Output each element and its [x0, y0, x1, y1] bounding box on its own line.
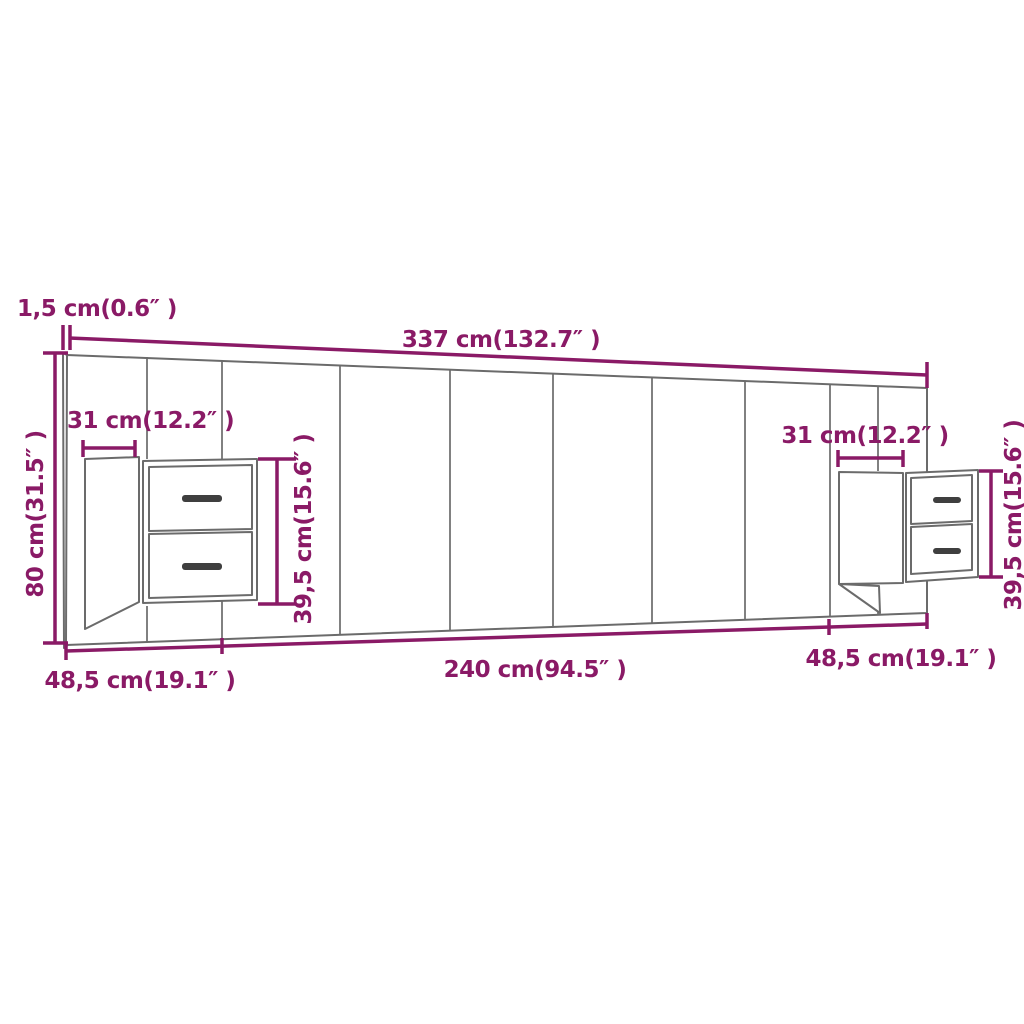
right-section-width-label: 48,5 cm(19.1″ )	[806, 646, 997, 672]
right-cabinet-width-label: 31 cm(12.2″ )	[781, 423, 948, 449]
left-cabinet-side-panel	[85, 457, 139, 629]
overall-width-label: 337 cm(132.7″ )	[402, 327, 600, 353]
right-cabinet-height-dimension	[979, 471, 1003, 577]
left-section-width-label: 48,5 cm(19.1″ )	[45, 668, 236, 694]
headboard-dimension-drawing: 1,5 cm(0.6″ ) 337 cm(132.7″ ) 31 cm(12.2…	[0, 0, 1024, 1024]
panel-thickness-label: 1,5 cm(0.6″ )	[17, 296, 177, 322]
overall-height-label: 80 cm(31.5″ )	[23, 430, 49, 597]
left-cabinet-width-label: 31 cm(12.2″ )	[67, 408, 234, 434]
drawer-handle-icon	[933, 497, 961, 503]
right-cabinet-height-label: 39,5 cm(15.6″ )	[1001, 420, 1024, 611]
left-cabinet-height-label: 39,5 cm(15.6″ )	[291, 434, 317, 625]
right-cabinet-side-panel	[839, 472, 903, 584]
drawer-handle-icon	[182, 495, 222, 502]
drawer-handle-icon	[182, 563, 222, 570]
drawer-handle-icon	[933, 548, 961, 554]
center-section-width-label: 240 cm(94.5″ )	[444, 657, 627, 683]
dimension-diagram: 1,5 cm(0.6″ ) 337 cm(132.7″ ) 31 cm(12.2…	[0, 0, 1024, 1024]
